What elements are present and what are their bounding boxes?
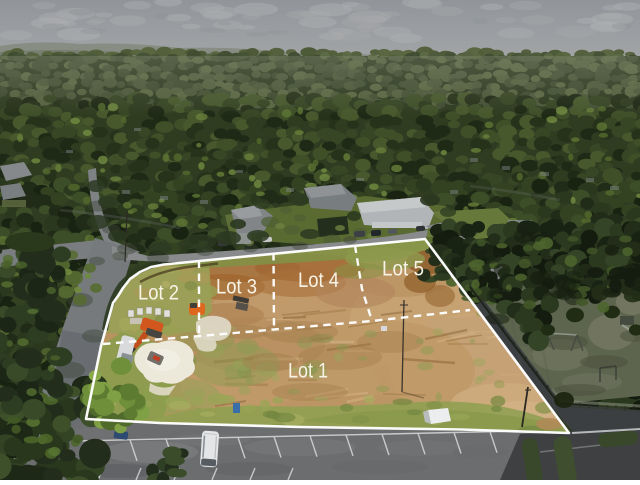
svg-text:Lot 4: Lot 4 [298,269,339,292]
svg-text:Lot 1: Lot 1 [288,360,328,383]
svg-text:Lot 5: Lot 5 [382,258,424,281]
svg-text:Lot 2: Lot 2 [138,282,179,305]
svg-text:Lot 3: Lot 3 [216,276,257,299]
